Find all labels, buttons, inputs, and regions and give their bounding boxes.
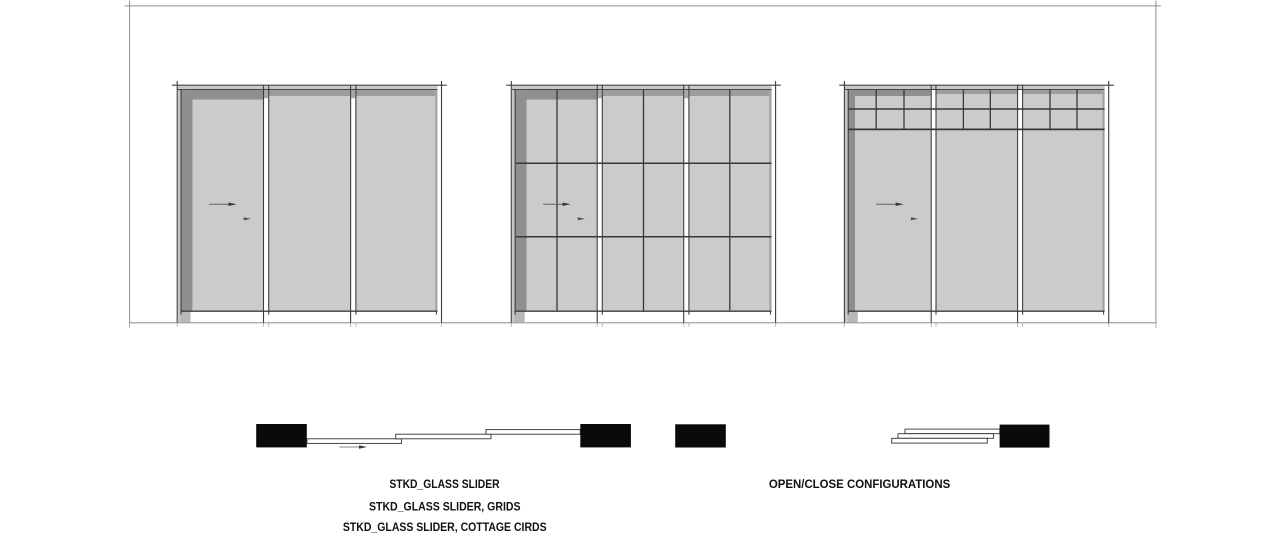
svg-text:STKD_GLASS SLIDER, COTTAGE CIR: STKD_GLASS SLIDER, COTTAGE CIRDS <box>343 520 547 534</box>
svg-text:STKD_GLASS SLIDER: STKD_GLASS SLIDER <box>389 477 499 491</box>
svg-text:STKD_GLASS SLIDER, GRIDS: STKD_GLASS SLIDER, GRIDS <box>369 499 521 513</box>
svg-text:OPEN/CLOSE CONFIGURATIONS: OPEN/CLOSE CONFIGURATIONS <box>769 477 950 491</box>
